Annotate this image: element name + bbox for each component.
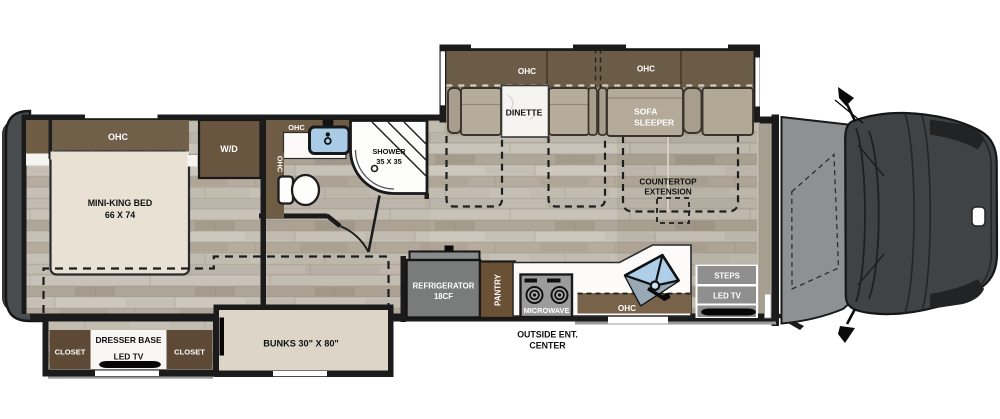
svg-text:MICROWAVE: MICROWAVE xyxy=(524,306,570,315)
svg-text:CLOSET: CLOSET xyxy=(174,348,205,357)
svg-text:EXTENSION: EXTENSION xyxy=(644,188,691,197)
svg-text:35 X 35: 35 X 35 xyxy=(376,157,401,166)
svg-text:SLEEPER: SLEEPER xyxy=(634,118,675,128)
svg-text:66 X 74: 66 X 74 xyxy=(105,210,135,220)
svg-text:BUNKS 30" X 80": BUNKS 30" X 80" xyxy=(263,339,339,349)
svg-text:OHC: OHC xyxy=(288,123,305,132)
svg-text:LED TV: LED TV xyxy=(114,352,144,362)
svg-text:OHC: OHC xyxy=(108,132,129,142)
svg-text:DINETTE: DINETTE xyxy=(506,108,543,118)
svg-text:STEPS: STEPS xyxy=(714,272,740,281)
svg-text:W/D: W/D xyxy=(220,144,238,154)
svg-text:CLOSET: CLOSET xyxy=(55,348,86,357)
svg-text:OHC: OHC xyxy=(518,67,536,76)
svg-text:OHC: OHC xyxy=(637,65,655,74)
svg-text:OHC: OHC xyxy=(276,156,285,173)
svg-text:SHOWER: SHOWER xyxy=(372,147,406,156)
svg-text:MINI-KING BED: MINI-KING BED xyxy=(88,198,153,208)
svg-text:COUNTERTOP: COUNTERTOP xyxy=(639,178,697,187)
svg-text:18CF: 18CF xyxy=(434,292,453,301)
svg-text:SOFA: SOFA xyxy=(634,107,657,117)
svg-text:CENTER: CENTER xyxy=(529,341,566,351)
svg-text:LED TV: LED TV xyxy=(713,292,742,301)
svg-text:PANTRY: PANTRY xyxy=(494,273,503,306)
svg-text:REFRIGERATOR: REFRIGERATOR xyxy=(413,282,475,291)
svg-text:OHC: OHC xyxy=(618,304,636,313)
svg-text:DRESSER BASE: DRESSER BASE xyxy=(95,335,161,345)
svg-text:OUTSIDE ENT.: OUTSIDE ENT. xyxy=(517,330,578,340)
